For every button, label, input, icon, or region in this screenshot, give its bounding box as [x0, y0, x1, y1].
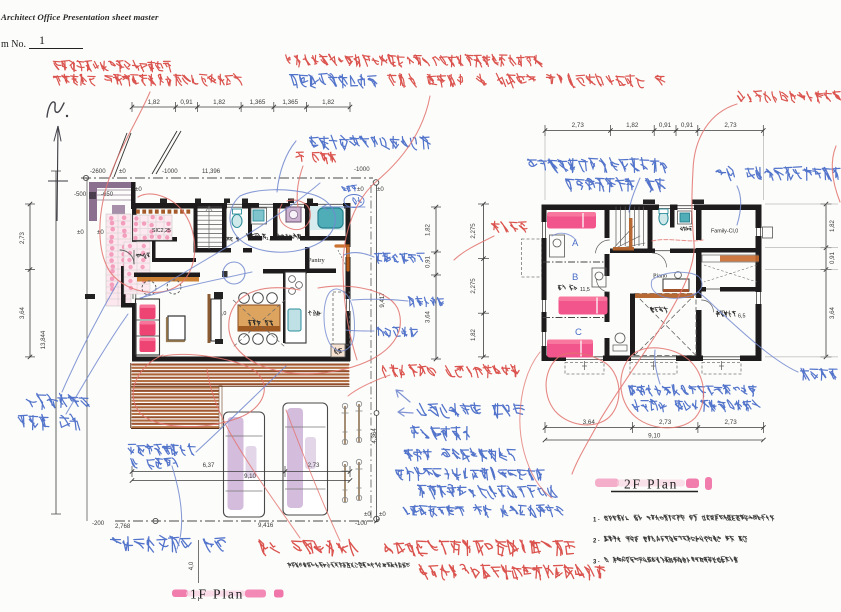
- svg-text:11,396: 11,396: [202, 168, 221, 175]
- svg-text:1,82: 1,82: [425, 223, 432, 235]
- svg-text:9,10: 9,10: [244, 473, 256, 480]
- svg-text:0,91: 0,91: [829, 251, 836, 263]
- svg-text:±0: ±0: [377, 186, 384, 193]
- svg-text:-100: -100: [355, 520, 368, 527]
- svg-text:2,73: 2,73: [572, 122, 585, 129]
- svg-text:3,64: 3,64: [829, 306, 836, 318]
- svg-text:11,5: 11,5: [580, 287, 590, 293]
- svg-text:1 ·: 1 ·: [593, 518, 600, 524]
- svg-text:1,82: 1,82: [213, 99, 226, 106]
- svg-text:-1000: -1000: [162, 168, 178, 175]
- svg-text:0,91: 0,91: [681, 122, 694, 129]
- svg-text:±0: ±0: [135, 186, 142, 193]
- svg-text:1F Plan: 1F Plan: [190, 587, 244, 602]
- svg-text:-1000: -1000: [354, 166, 370, 173]
- svg-text:2,768: 2,768: [115, 523, 131, 530]
- svg-text:±0: ±0: [379, 511, 386, 518]
- svg-text:UB 1616: UB 1616: [311, 236, 331, 242]
- svg-text:6,5: 6,5: [738, 314, 746, 320]
- svg-text:±0: ±0: [119, 168, 126, 175]
- svg-text:3,64: 3,64: [19, 306, 26, 318]
- svg-text:as Architect Office Presentati: as Architect Office Presentation sheet m…: [0, 12, 159, 22]
- svg-text:1,82: 1,82: [829, 219, 836, 231]
- svg-text:-500: -500: [74, 191, 87, 198]
- svg-text:3 ·: 3 ·: [593, 560, 600, 566]
- svg-text:0,91: 0,91: [425, 255, 432, 267]
- svg-text:1,82: 1,82: [322, 99, 335, 106]
- svg-text:2,275: 2,275: [470, 223, 477, 239]
- svg-text:2,275: 2,275: [470, 278, 477, 294]
- svg-text:2F Plan: 2F Plan: [624, 477, 678, 492]
- svg-text:-200: -200: [92, 520, 105, 527]
- svg-text:3,64: 3,64: [425, 310, 432, 322]
- svg-text:1,82: 1,82: [626, 122, 639, 129]
- svg-text:±0: ±0: [357, 186, 364, 193]
- svg-text:0,91: 0,91: [659, 122, 672, 129]
- svg-text:2,73: 2,73: [19, 231, 26, 243]
- svg-text:5,0: 5,0: [313, 312, 320, 318]
- svg-text:m No.: m No.: [1, 39, 26, 50]
- svg-text:9,10: 9,10: [648, 433, 661, 440]
- svg-text:Family-Cl,0: Family-Cl,0: [711, 229, 738, 235]
- svg-text:1: 1: [39, 33, 45, 47]
- svg-text:2 ·: 2 ·: [593, 539, 600, 545]
- svg-text:4,364: 4,364: [371, 428, 378, 444]
- svg-text:1,82: 1,82: [470, 328, 477, 340]
- svg-text:1,365: 1,365: [282, 99, 298, 106]
- svg-text:4,0: 4,0: [188, 561, 195, 570]
- svg-text:Pantry: Pantry: [308, 257, 325, 264]
- svg-text:9,416: 9,416: [258, 522, 274, 529]
- svg-text:±0: ±0: [77, 229, 84, 236]
- svg-text:SIC2,25: SIC2,25: [152, 228, 171, 234]
- svg-text:1,365: 1,365: [250, 99, 266, 106]
- svg-text:2,73: 2,73: [308, 462, 320, 469]
- svg-text:6,37: 6,37: [203, 462, 215, 469]
- svg-text:0,91: 0,91: [180, 99, 193, 106]
- svg-text:C: C: [575, 327, 582, 338]
- svg-text:2,73: 2,73: [724, 122, 737, 129]
- svg-text:-2600: -2600: [90, 168, 106, 175]
- svg-text:2,73: 2,73: [724, 419, 737, 426]
- svg-text:1,5: 1,5: [301, 236, 308, 242]
- svg-text:B: B: [572, 272, 578, 283]
- svg-text:±0: ±0: [364, 511, 371, 518]
- svg-text:±0: ±0: [97, 229, 104, 236]
- svg-text:1,82: 1,82: [148, 99, 161, 106]
- svg-text:1,5: 1,5: [266, 236, 273, 242]
- svg-text:2,73: 2,73: [659, 419, 672, 426]
- svg-text:13,844: 13,844: [40, 330, 47, 349]
